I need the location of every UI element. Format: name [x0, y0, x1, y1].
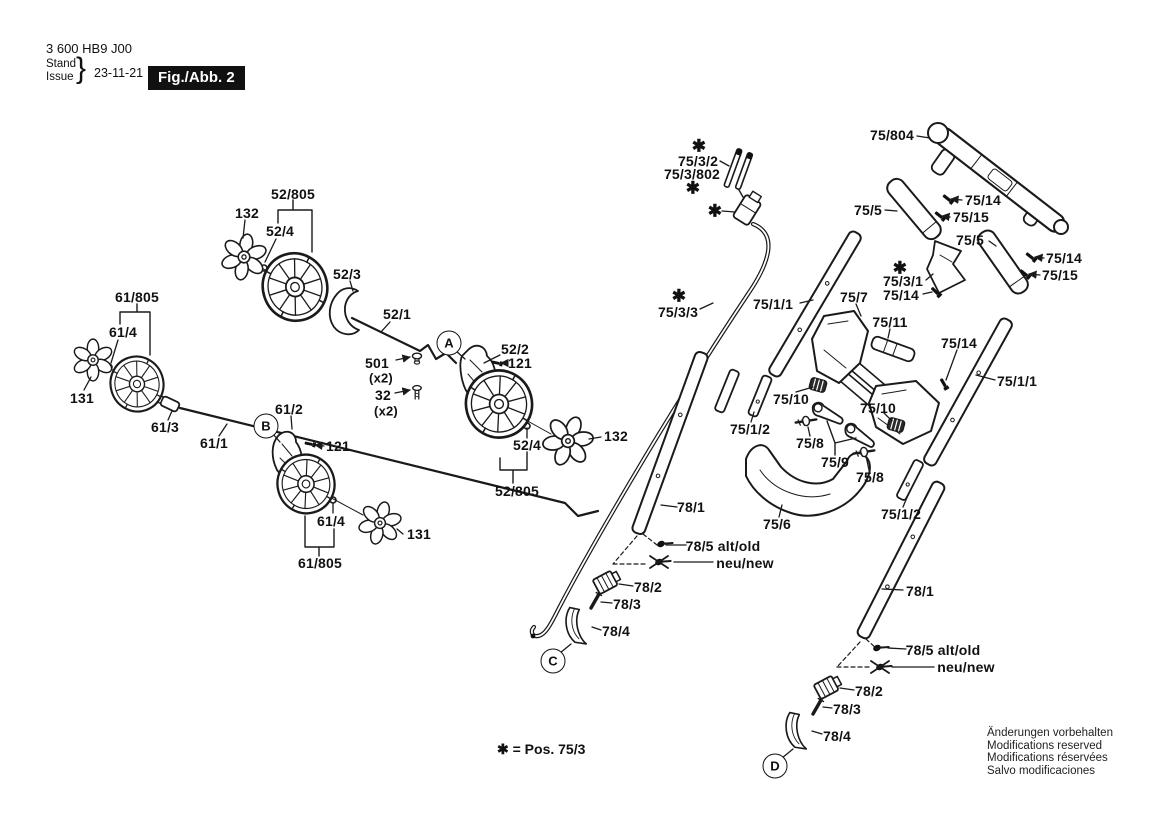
- grommet-78-5-left-new: [650, 555, 671, 568]
- brace-glyph: }: [76, 52, 86, 86]
- part-label-61-2: 61/2: [275, 401, 303, 417]
- part-label-75-7: 75/7: [840, 289, 868, 305]
- part-label-78-3: 78/3: [613, 596, 641, 612]
- asterisk-legend: ✱ = Pos. 75/3: [497, 741, 585, 758]
- wheel-52-805-top: [254, 245, 336, 329]
- part-label-132: 132: [235, 205, 259, 221]
- part-label-61-805: 61/805: [115, 289, 159, 305]
- part-label-75-1-1: 75/1/1: [997, 373, 1037, 389]
- part-label-52-1: 52/1: [383, 306, 411, 322]
- part-label-75-15: 75/15: [1042, 267, 1078, 283]
- fan-131-bottom: [354, 497, 407, 550]
- axle-61-1: [180, 408, 598, 516]
- part-label-75-804: 75/804: [870, 127, 914, 143]
- callout-c: C: [541, 649, 566, 674]
- bolt-32: [413, 386, 421, 399]
- part-label-75-14: 75/14: [965, 192, 1001, 208]
- screw-501: [413, 353, 422, 364]
- part-label-61-4: 61/4: [109, 324, 137, 340]
- part-label-75-6: 75/6: [763, 516, 791, 532]
- part-label-75-5: 75/5: [956, 232, 984, 248]
- part-label-501: 501: [365, 355, 389, 371]
- type-number: 3 600 HB9 J00: [46, 41, 132, 56]
- grommet-78-5-right-new: [871, 660, 892, 673]
- part-label-75-1-1: 75/1/1: [753, 296, 793, 312]
- part-label-61-1: 61/1: [200, 435, 228, 451]
- part-label-78-5-alt-old: 78/5 alt/old: [906, 642, 981, 658]
- part-label-75-10: 75/10: [860, 400, 896, 416]
- fan-132-bottom: [535, 408, 601, 474]
- notice-fr: Modifications réservées: [987, 752, 1113, 765]
- cap-78-2-left: [593, 568, 623, 594]
- parts-diagram-page: 3 600 HB9 J00 Stand Issue } 23-11-21 Fig…: [0, 0, 1169, 826]
- part-label-132: 132: [604, 428, 628, 444]
- cover-78-4-right: [783, 711, 806, 752]
- asterisk-marker: ✱: [708, 203, 722, 220]
- asterisk-marker: ✱: [686, 180, 700, 197]
- part-label-78-3: 78/3: [833, 701, 861, 717]
- bracket-52-3: [330, 288, 359, 334]
- part-label-52-805: 52/805: [495, 483, 539, 499]
- part-label-78-4: 78/4: [602, 623, 630, 639]
- part-label-78-5-alt-old: 78/5 alt/old: [686, 538, 761, 554]
- grommet-78-5-right: [872, 641, 889, 654]
- part-label-61-805: 61/805: [298, 555, 342, 571]
- part-label-75-1-2: 75/1/2: [730, 421, 770, 437]
- plug-75-3-2: [724, 148, 765, 225]
- part-label-75-10: 75/10: [773, 391, 809, 407]
- part-label-78-2: 78/2: [634, 579, 662, 595]
- cap-78-2-right: [814, 673, 844, 699]
- pin-78-3-left: [591, 593, 602, 609]
- part-label-78-2: 78/2: [855, 683, 883, 699]
- rail-75-1-2-right: [896, 459, 924, 501]
- part-label-75-8: 75/8: [856, 469, 884, 485]
- part-label-75-1-2: 75/1/2: [881, 506, 921, 522]
- lever-75-9-b: [842, 422, 878, 448]
- part-label-x2: (x2): [369, 371, 393, 386]
- part-label-neu-new: neu/new: [937, 659, 994, 675]
- part-label-75-3-3: 75/3/3: [658, 304, 698, 320]
- part-label-131: 131: [407, 526, 431, 542]
- part-label-32: 32: [375, 387, 391, 403]
- chassis-75-7: [812, 311, 939, 444]
- issue-label: Issue: [46, 71, 74, 83]
- part-label-75-8: 75/8: [796, 435, 824, 451]
- lever-75-9-a: [811, 402, 846, 425]
- part-label-75-14: 75/14: [1046, 250, 1082, 266]
- notice-en: Modifications reserved: [987, 740, 1113, 753]
- housing-75-6: [746, 445, 870, 515]
- part-label-x2: (x2): [374, 404, 398, 419]
- screw-75-8-a: [795, 414, 816, 427]
- part-label-78-1: 78/1: [677, 499, 705, 515]
- part-label-131: 131: [70, 390, 94, 406]
- part-label-75-14: 75/14: [883, 287, 919, 303]
- grommet-78-5-left: [656, 537, 673, 550]
- issue-date: 23-11-21: [94, 66, 143, 80]
- stand-label: Stand: [46, 58, 76, 70]
- cover-78-4-left: [563, 606, 586, 647]
- callout-d: D: [763, 754, 788, 779]
- notice-de: Änderungen vorbehalten: [987, 727, 1113, 740]
- part-label-52-805: 52/805: [271, 186, 315, 202]
- switch-housing-75-3-1: [927, 241, 965, 293]
- diagram-line-art: [0, 0, 1169, 826]
- part-label-75-5: 75/5: [854, 202, 882, 218]
- pin-78-3-right: [813, 699, 824, 715]
- part-label-52-4: 52/4: [513, 437, 541, 453]
- rights-notices: Änderungen vorbehalten Modifications res…: [987, 727, 1113, 777]
- spring-75-10-a: [809, 377, 828, 393]
- part-label-121: 121: [508, 355, 532, 371]
- notice-es: Salvo modificaciones: [987, 765, 1113, 778]
- bar-75-11: [870, 335, 916, 362]
- fan-131-top: [72, 339, 114, 381]
- part-label-75-9: 75/9: [821, 454, 849, 470]
- rail-75-1-2-left: [714, 369, 772, 417]
- part-label-75-15: 75/15: [953, 209, 989, 225]
- grip-75-5-left: [884, 176, 944, 243]
- part-label-78-4: 78/4: [823, 728, 851, 744]
- part-label-neu-new: neu/new: [716, 555, 773, 571]
- tube-78-1-right: [856, 480, 946, 640]
- part-label-52-4: 52/4: [266, 223, 294, 239]
- part-label-61-4: 61/4: [317, 513, 345, 529]
- asterisk-marker: ✱: [672, 288, 686, 305]
- asterisk-marker: ✱: [692, 138, 706, 155]
- part-label-78-1: 78/1: [906, 583, 934, 599]
- figure-label: Fig./Abb. 2: [148, 66, 245, 90]
- upper-handle-75-804: [928, 123, 1068, 235]
- part-label-75-11: 75/11: [872, 314, 907, 330]
- fan-132-top: [217, 230, 271, 284]
- part-label-52-3: 52/3: [333, 266, 361, 282]
- part-label-75-14: 75/14: [941, 335, 977, 351]
- callout-b: B: [254, 414, 279, 439]
- wheel-61-805-top: [103, 350, 170, 419]
- part-label-121: 121: [326, 438, 350, 454]
- callout-a: A: [437, 331, 462, 356]
- part-label-61-3: 61/3: [151, 419, 179, 435]
